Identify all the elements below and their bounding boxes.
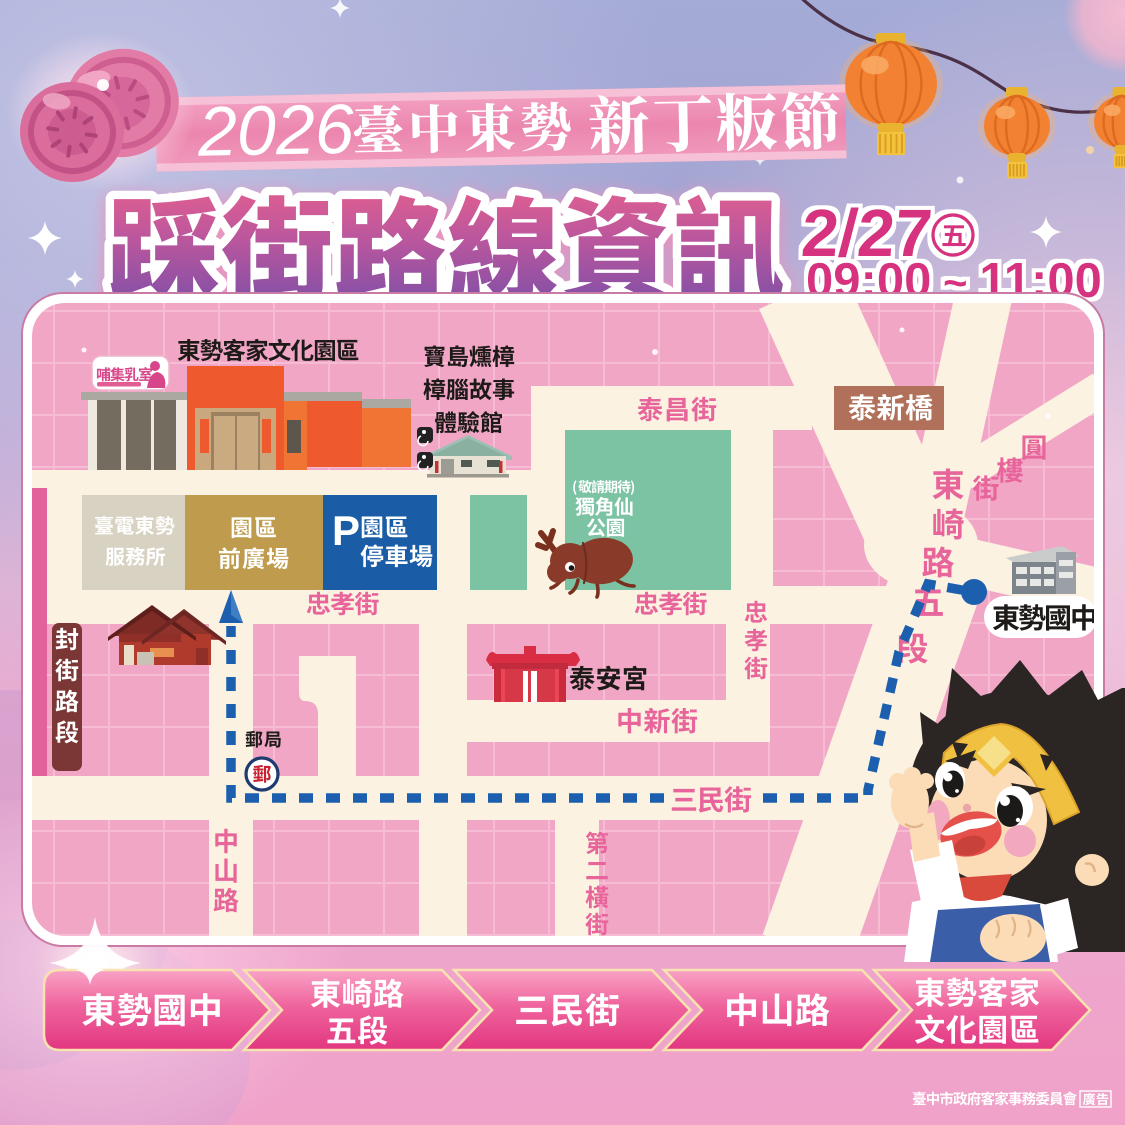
svg-text:P: P: [332, 507, 360, 554]
svg-text:2026: 2026: [196, 90, 354, 171]
